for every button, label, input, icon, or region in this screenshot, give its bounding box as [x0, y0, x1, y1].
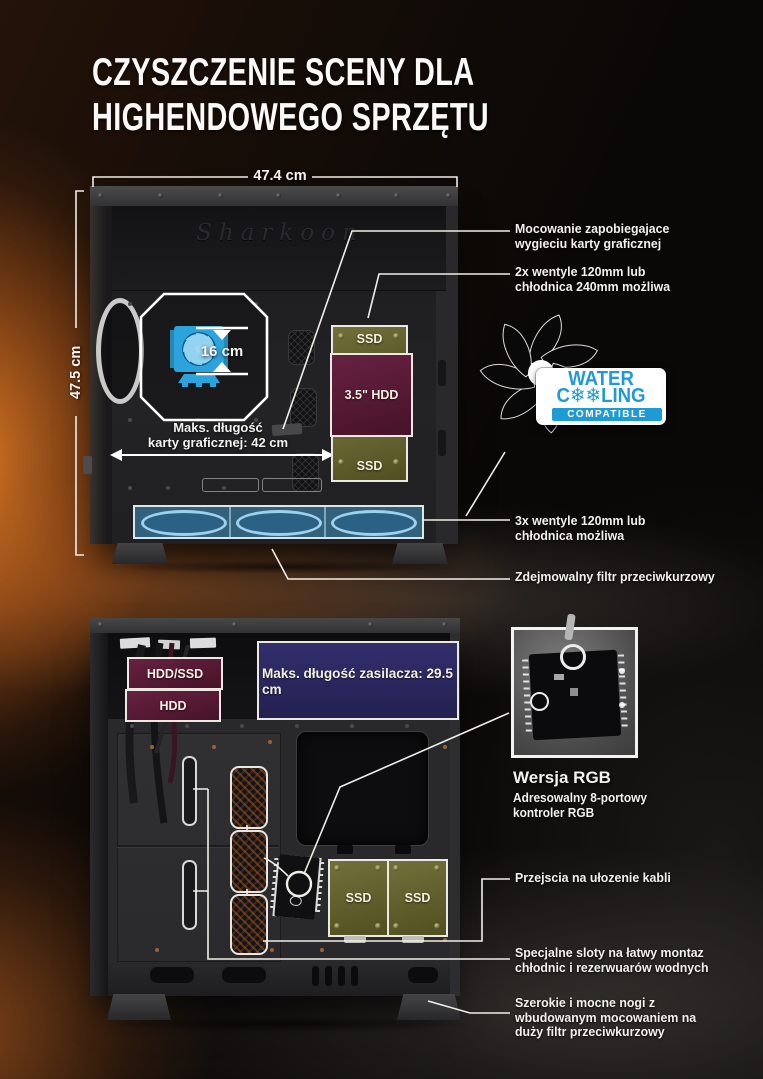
water-cooling-badge-cooling: C❄❄LING: [542, 388, 659, 405]
annotation-dust-filter: Zdejmowalny filtr przeciwkurzowy: [515, 570, 715, 585]
hdd-bay-label: 3.5" HDD: [345, 388, 399, 402]
bay-screw: [393, 459, 399, 465]
annotation-lines: [0, 0, 763, 1079]
annotation-gpu-anti-sag: Mocowanie zapobiegajace wygieciu karty g…: [515, 222, 669, 251]
annotation-case-feet: Szerokie i mocne nogi z wbudowanym mocow…: [515, 996, 696, 1040]
water-cooling-badge: WATER C❄❄LING COMPATIBLE: [536, 368, 666, 425]
bay-screw: [338, 459, 344, 465]
annotation-bottom-fans: 3x wentyle 120mm lub chłodnica możliwa: [515, 514, 645, 543]
pcb-ring-large: [560, 644, 586, 670]
pcb-chip: [554, 674, 564, 680]
rgb-section-title: Wersja RGB: [513, 768, 611, 788]
rgb-section-subtitle: Adresowalny 8-portowy kontroler RGB: [513, 791, 647, 820]
rgb-controller-photo: [511, 627, 638, 758]
mount-hole: [619, 668, 625, 674]
water-cooling-badge-compatible: COMPATIBLE: [552, 408, 662, 421]
mount-hole: [619, 702, 625, 708]
ssd-bay-label: SSD: [357, 459, 383, 473]
pcb-ring-small: [530, 692, 549, 711]
bay-screw: [393, 333, 399, 339]
annotation-radiator-slots: Specjalne sloty na łatwy montaz chłodnic…: [515, 946, 709, 975]
infographic-page: CZYSZCZENIE SCENY DLA HIGHENDOWEGO SPRZĘ…: [0, 0, 763, 1079]
annotation-top-fans: 2x wentyle 120mm lub chłodnica 240mm moż…: [515, 265, 670, 294]
annotation-cable-routing: Przejscia na ułozenie kabli: [515, 871, 671, 886]
pcb-chip: [570, 688, 578, 696]
hdd-bay: 3.5" HDD: [330, 353, 413, 437]
bay-screw: [338, 333, 344, 339]
ssd-bay-label: SSD: [357, 332, 383, 346]
